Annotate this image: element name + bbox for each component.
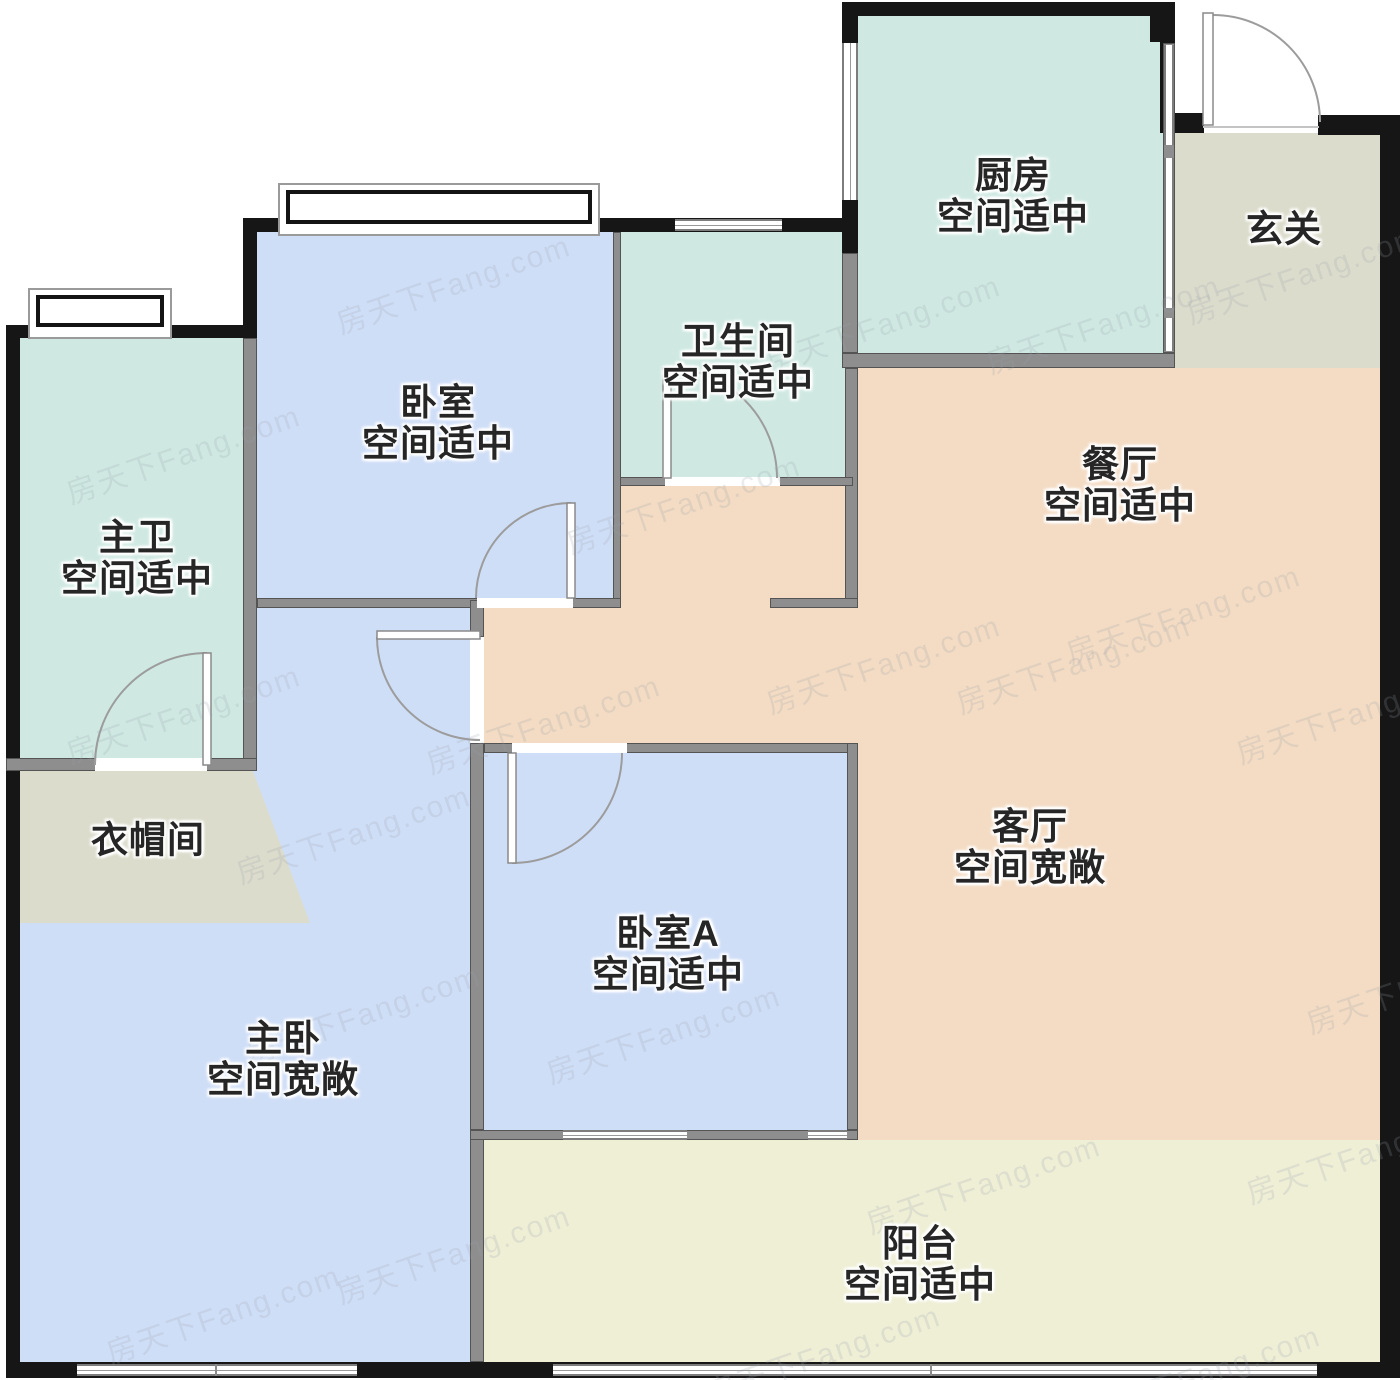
- room-label-balcony: 阳台 空间适中: [844, 1223, 996, 1305]
- room-label-entry: 玄关: [1246, 209, 1322, 250]
- room-label-master-bath: 主卫 空间适中: [61, 517, 213, 599]
- room-name: 卧室: [362, 382, 514, 423]
- door-leaf-bedroom-a: [508, 753, 516, 863]
- room-note: 空间宽敞: [207, 1059, 359, 1100]
- room-name: 衣帽间: [91, 820, 205, 861]
- room-note: 空间宽敞: [954, 847, 1106, 888]
- room-name: 主卫: [61, 517, 213, 558]
- door-arc-bedroom: [476, 503, 571, 598]
- room-label-closet: 衣帽间: [91, 820, 205, 861]
- door-arc-master-suite: [377, 637, 480, 740]
- room-note: 空间适中: [592, 954, 744, 995]
- room-name: 主卧: [207, 1018, 359, 1059]
- room-label-kitchen: 厨房 空间适中: [937, 155, 1089, 237]
- room-note: 空间适中: [61, 558, 213, 599]
- room-note: 空间适中: [1044, 485, 1196, 526]
- room-note: 空间适中: [662, 362, 814, 403]
- room-note: 空间适中: [844, 1264, 996, 1305]
- door-arc-entry: [1213, 15, 1320, 122]
- door-swing-layer: [0, 0, 1400, 1380]
- room-label-bathroom: 卫生间 空间适中: [662, 321, 814, 403]
- room-name: 卫生间: [662, 321, 814, 362]
- door-leaf-entry: [1203, 13, 1213, 125]
- room-label-dining: 餐厅 空间适中: [1044, 444, 1196, 526]
- door-leaf-master-suite: [377, 631, 480, 639]
- room-label-living: 客厅 空间宽敞: [954, 806, 1106, 888]
- door-arc-master-bath: [95, 653, 207, 765]
- room-name: 客厅: [954, 806, 1106, 847]
- door-leaf-master-bath: [203, 653, 211, 765]
- room-name: 厨房: [937, 155, 1089, 196]
- room-name: 餐厅: [1044, 444, 1196, 485]
- floor-plan: 房天下Fang.com房天下Fang.com房天下Fang.com房天下Fang…: [0, 0, 1400, 1380]
- room-name: 阳台: [844, 1223, 996, 1264]
- room-label-bedroom: 卧室 空间适中: [362, 382, 514, 464]
- door-arc-bedroom-a: [512, 753, 622, 863]
- room-name: 卧室A: [592, 913, 744, 954]
- room-name: 玄关: [1246, 209, 1322, 250]
- room-label-master-bedroom: 主卧 空间宽敞: [207, 1018, 359, 1100]
- room-note: 空间适中: [362, 423, 514, 464]
- room-label-bedroom-a: 卧室A 空间适中: [592, 913, 744, 995]
- door-leaf-bedroom: [567, 503, 575, 598]
- room-note: 空间适中: [937, 196, 1089, 237]
